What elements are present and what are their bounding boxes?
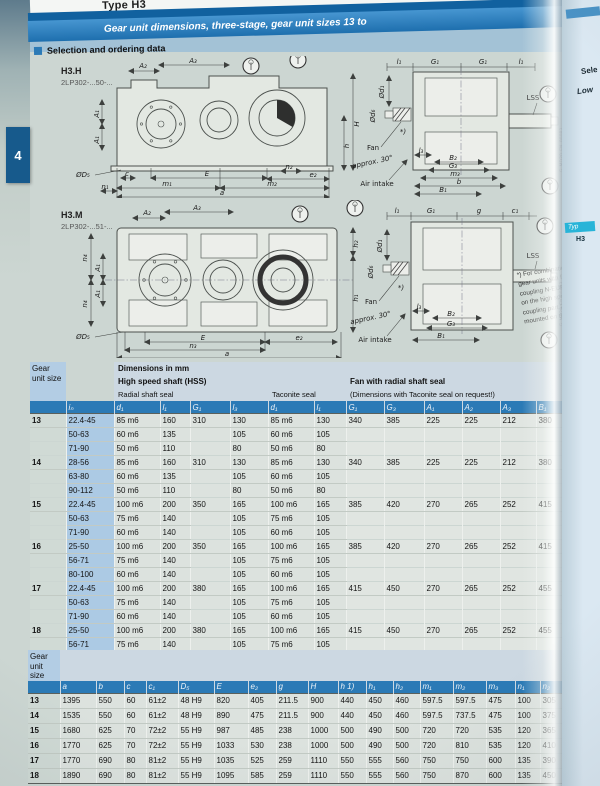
table-row: 90-11250 m61108050 m680: [30, 484, 590, 498]
table-cell: [424, 526, 462, 540]
table-cell: [384, 554, 424, 568]
table-cell: [190, 428, 230, 442]
table-cell: [190, 568, 230, 582]
table-cell: 1535: [60, 708, 96, 723]
svg-text:A₂: A₂: [138, 62, 147, 70]
table-cell: 22.4-45: [66, 414, 114, 428]
table-cell: 385: [384, 414, 424, 428]
table-cell: 80: [230, 484, 268, 498]
svg-text:h₁: h₁: [352, 294, 360, 301]
table-cell: 140: [160, 512, 190, 526]
column-header: l₁: [160, 401, 190, 414]
column-header-row: iₙd₁l₁G₁l₃d₁l₁G₁G₃A₁A₂A₃B₁B₂: [30, 401, 590, 414]
table-cell: 525: [248, 753, 276, 768]
table-cell: 720: [420, 723, 453, 738]
hss-dimensions-table-wrap: Gear unit size Dimensions in mm High spe…: [30, 362, 590, 666]
table-row: 1617706257072±255 H910335302381000500490…: [28, 738, 600, 753]
table-cell: 71-90: [66, 526, 114, 540]
lifting-eye-icon: [290, 56, 306, 68]
table-cell: 500: [393, 738, 420, 753]
table-cell: 105: [230, 428, 268, 442]
table-cell: 380: [190, 582, 230, 596]
table-cell: 75 m6: [114, 596, 160, 610]
drawing-h3m-svg: A₂ A₃ n₄ A₁ A₁ n₄ h₂ h₁ E e₂ n₃ a ØD₅: [55, 200, 570, 358]
table-cell: 440: [338, 693, 366, 708]
table-cell: 100 m6: [268, 624, 314, 638]
table-row: 63-8060 m613510560 m6105: [30, 470, 590, 484]
svg-text:n₂: n₂: [285, 163, 292, 171]
table-cell: 535: [486, 723, 515, 738]
table-cell: 22.4-45: [66, 582, 114, 596]
table-cell: 25-50: [66, 624, 114, 638]
table-cell: 60 m6: [268, 610, 314, 624]
column-header: G₁: [346, 401, 384, 414]
column-header: [30, 401, 66, 414]
svg-text:b: b: [457, 178, 462, 186]
table-cell: 165: [230, 498, 268, 512]
table-cell: [346, 554, 384, 568]
table-cell: [384, 596, 424, 610]
table-cell: 120: [515, 723, 540, 738]
table-cell: 385: [346, 540, 384, 554]
table-cell: 225: [424, 414, 462, 428]
table-cell: 750: [453, 753, 486, 768]
table-cell: 63-80: [66, 470, 114, 484]
table-cell: [500, 596, 536, 610]
table-cell: 270: [424, 624, 462, 638]
table-cell: 1000: [308, 723, 338, 738]
table-row: 80-10060 m614010560 m6105: [30, 568, 590, 582]
table-cell: 212: [500, 414, 536, 428]
table-cell: [30, 428, 66, 442]
table-cell: 597.5: [453, 693, 486, 708]
table-cell: 625: [96, 723, 124, 738]
table-cell: 14: [28, 708, 60, 723]
table-cell: 75 m6: [114, 512, 160, 526]
table-cell: 85 m6: [114, 414, 160, 428]
svg-text:h₂: h₂: [352, 240, 360, 247]
table-row: 1322.4-4585 m616031013085 m6130340385225…: [30, 414, 590, 428]
table-cell: 75 m6: [268, 554, 314, 568]
table-cell: [384, 442, 424, 456]
chapter-tab: 4: [6, 127, 30, 183]
blank-header: [66, 362, 114, 401]
table-cell: 13: [28, 693, 60, 708]
table-cell: 75 m6: [268, 512, 314, 526]
band-hss: High speed shaft (HSS): [114, 375, 346, 388]
table-cell: 17: [28, 753, 60, 768]
band-dimensions: Dimensions in mm: [114, 362, 590, 375]
table-cell: 1110: [308, 768, 338, 783]
column-header: A₃: [500, 401, 536, 414]
svg-text:n₁: n₁: [101, 183, 108, 191]
table-cell: [346, 484, 384, 498]
band-radial-seal: Radial shaft seal: [114, 388, 268, 401]
table-cell: 60 m6: [268, 470, 314, 484]
table-cell: 1033: [214, 738, 248, 753]
catalog-page-photo: { "page": { "top_title": "Type H3", "ban…: [0, 0, 600, 786]
svg-text:m₂: m₂: [267, 180, 277, 188]
general-table-body: 1313955506061±248 H9820405211.5900440450…: [28, 693, 600, 783]
table-cell: 70: [124, 738, 146, 753]
table-cell: 80-100: [66, 568, 114, 582]
table-cell: 1890: [60, 768, 96, 783]
table-cell: 18: [28, 768, 60, 783]
table-cell: [190, 512, 230, 526]
table-cell: [500, 526, 536, 540]
table-cell: 1110: [308, 753, 338, 768]
table-row: 71-9050 m61108050 m680: [30, 442, 590, 456]
corner-header: Gear unit size: [30, 362, 66, 401]
column-header: h₁: [366, 681, 393, 694]
hss-dimensions-table: Gear unit size Dimensions in mm High spe…: [30, 362, 590, 666]
table-row: 1313955506061±248 H9820405211.5900440450…: [28, 693, 600, 708]
table-cell: 105: [230, 526, 268, 540]
table-cell: 900: [308, 708, 338, 723]
table-cell: [462, 526, 500, 540]
general-dimensions-table: Gear unit size abcc₁D₅Ee₂gHh 1)h₁h₂m₁m₂m…: [28, 650, 600, 784]
table-cell: 15: [30, 498, 66, 512]
table-row: 50-6360 m613510560 m6105: [30, 428, 590, 442]
column-header: c: [124, 681, 146, 694]
table-cell: 130: [314, 456, 346, 470]
table-cell: 50-63: [66, 512, 114, 526]
table-cell: 597.5: [420, 708, 453, 723]
table-cell: 55 H9: [178, 723, 214, 738]
table-row: 1717706908081±255 H910355252591110550555…: [28, 753, 600, 768]
svg-text:A₂: A₂: [142, 209, 151, 217]
table-cell: [462, 610, 500, 624]
table-cell: 340: [346, 456, 384, 470]
table-cell: 252: [500, 582, 536, 596]
svg-text:A₁: A₁: [94, 290, 102, 299]
svg-text:LSS: LSS: [527, 94, 540, 102]
table-cell: [384, 428, 424, 442]
svg-text:H: H: [353, 121, 361, 127]
table-row: 1428-5685 m616031013085 m613034038522522…: [30, 456, 590, 470]
table-cell: 450: [366, 693, 393, 708]
table-cell: [190, 554, 230, 568]
table-cell: [190, 442, 230, 456]
table-cell: 385: [346, 498, 384, 512]
table-cell: 160: [160, 456, 190, 470]
svg-text:l₁: l₁: [519, 58, 524, 66]
table-cell: 81±2: [146, 753, 178, 768]
column-header: m₃: [486, 681, 515, 694]
table-cell: [424, 610, 462, 624]
column-header: c₁: [146, 681, 178, 694]
table-cell: 55 H9: [178, 738, 214, 753]
lifting-eye-icon: [542, 178, 558, 194]
table-cell: [30, 470, 66, 484]
table-cell: 350: [190, 540, 230, 554]
table-cell: [424, 442, 462, 456]
table-cell: 105: [314, 512, 346, 526]
table-cell: [30, 442, 66, 456]
table-cell: 85 m6: [114, 456, 160, 470]
h3h-side-view: A₂ A₃ A₁ A₁ H h c E n₂ e₂ m₁ m₂ a: [75, 57, 361, 198]
svg-text:*): *): [398, 284, 405, 292]
table-cell: 80: [124, 768, 146, 783]
svg-text:G₁: G₁: [431, 58, 439, 66]
table-cell: 165: [314, 498, 346, 512]
svg-text:m₃: m₃: [450, 170, 460, 178]
table-cell: 72±2: [146, 723, 178, 738]
table-cell: 737.5: [453, 708, 486, 723]
column-header: H: [308, 681, 338, 694]
table-cell: 100 m6: [114, 582, 160, 596]
table-cell: 415: [346, 582, 384, 596]
table-cell: [190, 526, 230, 540]
table-cell: [462, 470, 500, 484]
svg-text:B₂: B₂: [449, 154, 457, 162]
table-cell: 105: [230, 512, 268, 526]
drawing-h3m: H3.M 2LP302-...51-...: [55, 200, 570, 358]
table-cell: [346, 568, 384, 582]
table-row: 50-6375 m614010575 m6105: [30, 596, 590, 610]
table-cell: [424, 554, 462, 568]
svg-text:B₁: B₁: [439, 186, 447, 194]
svg-text:*): *): [400, 128, 407, 136]
table-cell: [384, 470, 424, 484]
table-cell: 750: [420, 753, 453, 768]
table-cell: 270: [424, 498, 462, 512]
table-cell: 490: [366, 738, 393, 753]
table-cell: 81±2: [146, 768, 178, 783]
table-cell: 16: [30, 540, 66, 554]
svg-text:Air intake: Air intake: [358, 336, 391, 344]
drawing-h3h: H3.H 2LP302-...50-...: [55, 56, 570, 198]
lifting-eye-icon: [541, 332, 557, 348]
table-row: 56-7175 m614010575 m6105: [30, 554, 590, 568]
table-cell: 61±2: [146, 708, 178, 723]
next-page-text-fragment: Sele: [580, 65, 598, 76]
table-cell: 75 m6: [268, 596, 314, 610]
column-header: g: [276, 681, 308, 694]
table-cell: 1770: [60, 738, 96, 753]
table-cell: 18: [30, 624, 66, 638]
column-header: h 1): [338, 681, 366, 694]
table-cell: 238: [276, 723, 308, 738]
table-cell: 500: [338, 738, 366, 753]
table-cell: 550: [96, 708, 124, 723]
table-row: 1415355506061±248 H9890475211.5900440450…: [28, 708, 600, 723]
band-continuation: [60, 650, 600, 681]
table-cell: 987: [214, 723, 248, 738]
table-cell: 415: [346, 624, 384, 638]
table-cell: 550: [96, 693, 124, 708]
table-cell: [424, 596, 462, 610]
table-cell: 550: [338, 753, 366, 768]
table-cell: [30, 596, 66, 610]
table-cell: 80: [314, 484, 346, 498]
table-cell: 259: [276, 753, 308, 768]
table-cell: 71-90: [66, 610, 114, 624]
table-cell: 720: [420, 738, 453, 753]
svg-text:h: h: [343, 144, 351, 148]
table-row: 1522.4-45100 m6200350165100 m61653854202…: [30, 498, 590, 512]
table-cell: 485: [248, 723, 276, 738]
table-cell: 270: [424, 540, 462, 554]
svg-text:l₁: l₁: [397, 58, 402, 66]
table-cell: 105: [230, 568, 268, 582]
table-cell: 550: [338, 768, 366, 783]
column-header: G₃: [384, 401, 424, 414]
table-cell: [30, 554, 66, 568]
table-cell: [384, 512, 424, 526]
band-taconite-seal: Taconite seal: [268, 388, 346, 401]
table-cell: [424, 568, 462, 582]
lifting-eye-icon: [537, 218, 553, 234]
band-fan: Fan with radial shaft seal: [346, 375, 590, 388]
table-cell: 560: [393, 768, 420, 783]
svg-text:A₃: A₃: [192, 204, 201, 212]
table-cell: 252: [500, 540, 536, 554]
table-cell: 140: [160, 610, 190, 624]
table-cell: 120: [515, 738, 540, 753]
column-header: h₂: [393, 681, 420, 694]
svg-text:c₁: c₁: [512, 207, 519, 215]
table-cell: 310: [190, 414, 230, 428]
table-cell: 500: [338, 723, 366, 738]
table-cell: 105: [230, 470, 268, 484]
column-header: b: [96, 681, 124, 694]
svg-text:a: a: [225, 350, 229, 358]
table-cell: 60 m6: [114, 610, 160, 624]
table-cell: 140: [160, 568, 190, 582]
table-cell: [346, 512, 384, 526]
table-cell: 450: [384, 624, 424, 638]
table-cell: 555: [366, 768, 393, 783]
column-header-row: abcc₁D₅Ee₂gHh 1)h₁h₂m₁m₂m₃n₁n₂n₃n₄: [28, 681, 600, 694]
table-cell: 600: [486, 753, 515, 768]
table-cell: 252: [500, 624, 536, 638]
table-cell: 80: [124, 753, 146, 768]
table-row: 71-9060 m614010560 m6105: [30, 610, 590, 624]
table-cell: [384, 484, 424, 498]
table-cell: [462, 484, 500, 498]
table-cell: 60 m6: [114, 470, 160, 484]
table-cell: [500, 442, 536, 456]
table-cell: 15: [28, 723, 60, 738]
table-cell: [424, 470, 462, 484]
table-cell: 17: [30, 582, 66, 596]
table-cell: 165: [230, 540, 268, 554]
table-cell: [384, 526, 424, 540]
svg-text:B₁: B₁: [437, 332, 445, 340]
table-cell: 165: [314, 582, 346, 596]
table-cell: 460: [393, 708, 420, 723]
table-cell: 870: [453, 768, 486, 783]
svg-text:B₂: B₂: [447, 310, 455, 318]
table-cell: 60 m6: [114, 428, 160, 442]
table-cell: 265: [462, 582, 500, 596]
table-cell: [462, 568, 500, 582]
table-cell: 165: [314, 540, 346, 554]
table-cell: 475: [486, 693, 515, 708]
table-cell: 80: [314, 442, 346, 456]
table-cell: 380: [190, 624, 230, 638]
column-header: m₂: [453, 681, 486, 694]
table-cell: [424, 512, 462, 526]
table-cell: 50-63: [66, 428, 114, 442]
table-cell: 212: [500, 456, 536, 470]
lifting-eye-icon: [292, 206, 308, 222]
table-cell: 265: [462, 624, 500, 638]
svg-text:n₃: n₃: [189, 342, 196, 350]
next-page-type-label: H3: [576, 236, 585, 243]
column-header: e₂: [248, 681, 276, 694]
table-cell: 105: [314, 568, 346, 582]
svg-text:A₁: A₁: [94, 264, 102, 273]
general-dimensions-table-wrap: Gear unit size abcc₁D₅Ee₂gHh 1)h₁h₂m₁m₂m…: [28, 650, 600, 784]
table-cell: 80: [230, 442, 268, 456]
svg-text:A₁: A₁: [93, 136, 101, 145]
table-cell: [462, 442, 500, 456]
table-cell: 1000: [308, 738, 338, 753]
table-cell: 890: [214, 708, 248, 723]
svg-text:e₂: e₂: [295, 334, 302, 342]
table-cell: 13: [30, 414, 66, 428]
lifting-eye-icon: [243, 58, 259, 74]
table-cell: 100 m6: [268, 540, 314, 554]
svg-text:G₃: G₃: [449, 162, 457, 170]
table-cell: [346, 596, 384, 610]
column-header: E: [214, 681, 248, 694]
table-cell: [190, 484, 230, 498]
svg-text:E: E: [201, 334, 206, 342]
table-cell: 165: [314, 624, 346, 638]
table-cell: 310: [190, 456, 230, 470]
table-cell: [190, 610, 230, 624]
h3m-top-view: A₂ A₃ n₄ A₁ A₁ n₄ h₂ h₁ E e₂ n₃ a ØD₅: [75, 204, 360, 358]
column-header: A₂: [462, 401, 500, 414]
section-heading: Selection and ordering data: [34, 43, 166, 56]
svg-text:Ød₁: Ød₁: [378, 85, 386, 99]
table-cell: [384, 610, 424, 624]
table-cell: 475: [486, 708, 515, 723]
table-cell: 105: [314, 428, 346, 442]
page-left-edge: [0, 0, 30, 786]
table-cell: 60: [124, 708, 146, 723]
table-cell: [424, 428, 462, 442]
table-cell: 60: [124, 693, 146, 708]
table-cell: 690: [96, 768, 124, 783]
table-cell: 270: [424, 582, 462, 596]
svg-text:n₄: n₄: [81, 300, 89, 307]
svg-text:a: a: [220, 189, 224, 197]
table-cell: 265: [462, 540, 500, 554]
table-cell: 1770: [60, 753, 96, 768]
column-header: n₁: [515, 681, 540, 694]
table-cell: 110: [160, 442, 190, 456]
table-cell: 810: [453, 738, 486, 753]
table-cell: [500, 428, 536, 442]
table-cell: [500, 610, 536, 624]
table-cell: 50 m6: [114, 442, 160, 456]
table-cell: 135: [515, 753, 540, 768]
table-cell: 85 m6: [268, 456, 314, 470]
svg-text:l₁: l₁: [395, 207, 400, 215]
table-cell: [190, 470, 230, 484]
table-cell: 105: [314, 610, 346, 624]
chapter-banner-title: Gear unit dimensions, three-stage, gear …: [104, 17, 367, 35]
h3h-cross-view: l₁ G₁ G₁ l₁ LSS Ød₁ Ød₆ *) Fan approx. 3…: [352, 58, 565, 194]
table-cell: 259: [276, 768, 308, 783]
svg-text:g: g: [477, 207, 482, 215]
table-cell: [462, 428, 500, 442]
table-cell: 105: [314, 470, 346, 484]
